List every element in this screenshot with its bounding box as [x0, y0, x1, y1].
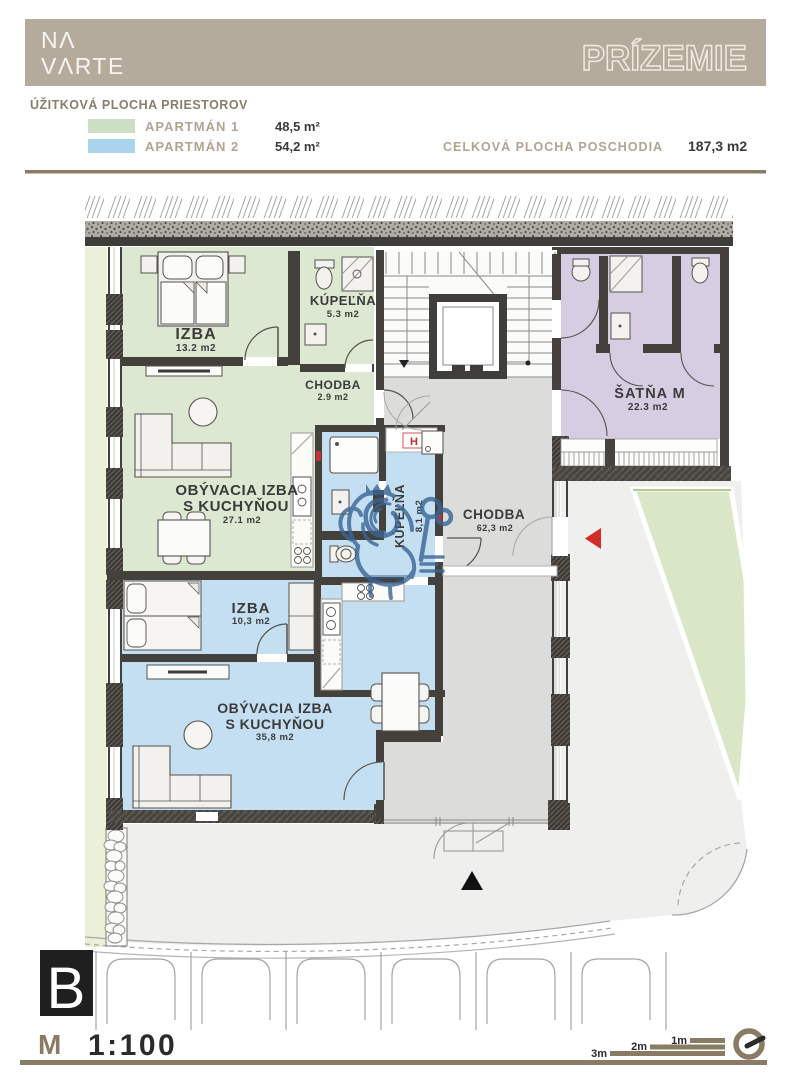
svg-text:3m: 3m — [591, 1048, 607, 1060]
svg-text:B: B — [47, 956, 86, 1021]
svg-text:10,3 m2: 10,3 m2 — [232, 616, 270, 627]
svg-text:OBÝVACIA IZBA: OBÝVACIA IZBA — [175, 481, 298, 499]
svg-text:APARTMÁN 2: APARTMÁN 2 — [145, 139, 239, 154]
svg-text:13.2 m2: 13.2 m2 — [176, 343, 216, 354]
svg-text:M: M — [38, 1029, 61, 1060]
svg-text:2m: 2m — [631, 1041, 647, 1053]
svg-text:2.9 m2: 2.9 m2 — [317, 392, 348, 402]
svg-text:48,5 m²: 48,5 m² — [275, 119, 320, 134]
svg-text:S KUCHYŇOU: S KUCHYŇOU — [225, 715, 324, 732]
svg-text:NΛ: NΛ — [41, 27, 76, 53]
svg-text:62,3 m2: 62,3 m2 — [477, 523, 514, 533]
svg-text:IZBA: IZBA — [232, 600, 271, 617]
svg-text:CELKOVÁ PLOCHA POSCHODIA: CELKOVÁ PLOCHA POSCHODIA — [443, 139, 663, 154]
svg-text:ŠATŇA M: ŠATŇA M — [614, 384, 685, 402]
svg-text:PRÍZEMIE: PRÍZEMIE — [582, 38, 747, 78]
svg-text:OBÝVACIA IZBA: OBÝVACIA IZBA — [217, 699, 332, 716]
svg-text:APARTMÁN 1: APARTMÁN 1 — [145, 119, 239, 134]
svg-text:CHODBA: CHODBA — [305, 378, 361, 392]
svg-text:CHODBA: CHODBA — [463, 507, 525, 522]
svg-text:H: H — [410, 436, 418, 448]
svg-text:35,8 m2: 35,8 m2 — [256, 732, 294, 743]
svg-text:1:100: 1:100 — [88, 1029, 177, 1062]
svg-text:5.3 m2: 5.3 m2 — [327, 309, 360, 320]
svg-text:27.1 m2: 27.1 m2 — [223, 515, 261, 526]
svg-text:S KUCHYŇOU: S KUCHYŇOU — [183, 497, 289, 515]
svg-text:187,3 m2: 187,3 m2 — [688, 138, 747, 154]
svg-text:IZBA: IZBA — [175, 326, 216, 343]
svg-text:ÚŽITKOVÁ PLOCHA PRIESTOROV: ÚŽITKOVÁ PLOCHA PRIESTOROV — [30, 97, 248, 112]
svg-text:54,2 m²: 54,2 m² — [275, 139, 320, 154]
svg-text:22.3 m2: 22.3 m2 — [628, 402, 668, 413]
svg-text:KÚPEĽŇA: KÚPEĽŇA — [310, 293, 376, 308]
svg-text:VΛRTE: VΛRTE — [41, 53, 125, 79]
svg-text:1m: 1m — [671, 1035, 687, 1047]
